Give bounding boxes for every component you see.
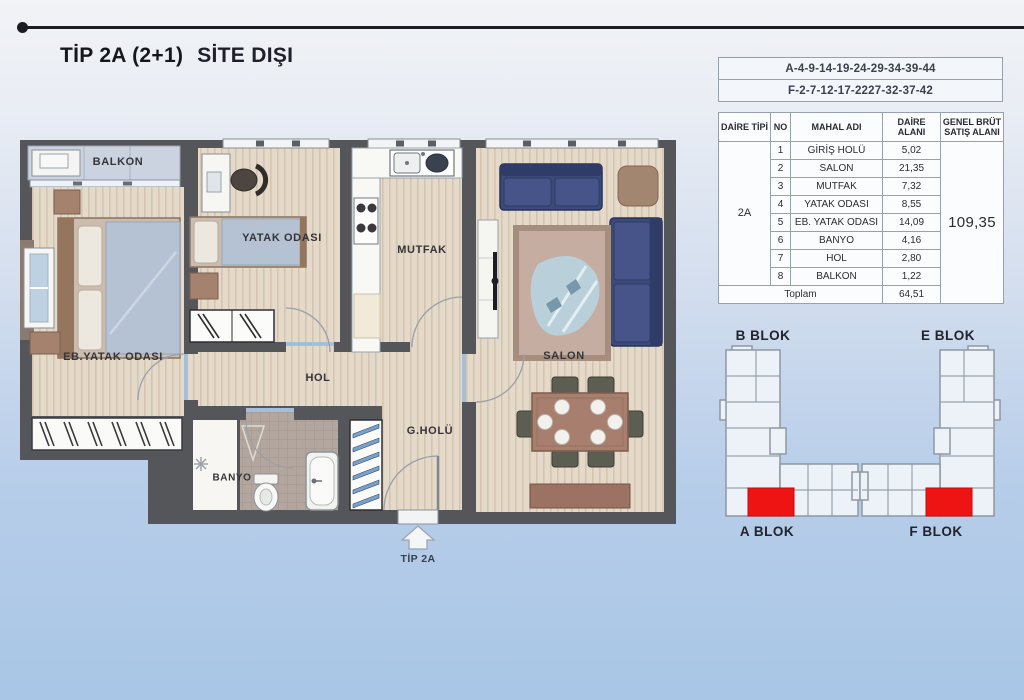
entrance-opening xyxy=(398,510,438,524)
area-table: DAİRE TİPİ NO MAHAL ADI DAİRE ALANI GENE… xyxy=(718,112,1004,304)
unit-codes-line-1: A-4-9-14-19-24-29-34-39-44 xyxy=(718,57,1003,80)
row-name: BANYO xyxy=(791,232,883,250)
col-daire-tipi: DAİRE TİPİ xyxy=(719,113,771,142)
entrance-type-label: TİP 2A xyxy=(401,553,436,565)
block-label-a: A BLOK xyxy=(712,524,822,539)
row-no: 8 xyxy=(771,268,791,286)
bathtub xyxy=(306,452,338,510)
bedroom2-wardrobe xyxy=(190,310,274,342)
col-mahal-adi: MAHAL ADI xyxy=(791,113,883,142)
row-area: 2,80 xyxy=(883,250,941,268)
unit-codes: A-4-9-14-19-24-29-34-39-44 F-2-7-12-17-2… xyxy=(718,57,1003,102)
col-daire-alani: DAİRE ALANI xyxy=(883,113,941,142)
eb-wardrobe xyxy=(32,418,182,450)
block-label-b: B BLOK xyxy=(708,328,818,343)
sofa-two-seat xyxy=(500,164,602,210)
sideboard xyxy=(530,484,630,508)
page-title-type: TİP 2A (2+1) xyxy=(60,44,183,67)
col-genel-brut: GENEL BRÜT SATIŞ ALANI xyxy=(941,113,1004,142)
row-no: 5 xyxy=(771,214,791,232)
page-title: TİP 2A (2+1)SİTE DIŞI xyxy=(60,44,293,68)
page-title-suffix: SİTE DIŞI xyxy=(197,44,293,67)
toplam-label: Toplam xyxy=(719,286,883,304)
header-line xyxy=(22,26,1024,29)
row-area: 7,32 xyxy=(883,178,941,196)
star-symbol xyxy=(194,457,208,471)
sofa-three-seat xyxy=(610,218,662,346)
row-name: GİRİŞ HOLÜ xyxy=(791,142,883,160)
block-diagram-ef xyxy=(858,344,1008,524)
floor-plan: BALKON YATAK ODASI MUTFAK SALON EB.YATAK… xyxy=(18,134,698,579)
daire-tipi-value: 2A xyxy=(719,142,771,286)
bay-window xyxy=(20,240,54,340)
highlighted-unit xyxy=(748,488,794,516)
row-name: HOL xyxy=(791,250,883,268)
row-area: 8,55 xyxy=(883,196,941,214)
room-label-eb-yatak-odasi: EB.YATAK ODASI xyxy=(63,351,163,363)
room-label-hol: HOL xyxy=(305,372,330,384)
room-label-yatak-odasi: YATAK ODASI xyxy=(242,232,322,244)
toplam-value: 64,51 xyxy=(883,286,941,304)
row-no: 7 xyxy=(771,250,791,268)
stove xyxy=(354,198,378,244)
row-no: 6 xyxy=(771,232,791,250)
room-label-g-holu: G.HOLÜ xyxy=(407,425,453,437)
row-area: 1,22 xyxy=(883,268,941,286)
row-no: 1 xyxy=(771,142,791,160)
rug xyxy=(516,228,608,358)
dresser xyxy=(30,332,60,354)
block-diagram-ba xyxy=(712,344,862,524)
row-name: EB. YATAK ODASI xyxy=(791,214,883,232)
row-area: 14,09 xyxy=(883,214,941,232)
row-area: 5,02 xyxy=(883,142,941,160)
room-label-banyo: BANYO xyxy=(212,473,251,484)
row-name: SALON xyxy=(791,160,883,178)
row-area: 4,16 xyxy=(883,232,941,250)
unit-codes-line-2: F-2-7-12-17-2227-32-37-42 xyxy=(718,79,1003,102)
highlighted-unit xyxy=(926,488,972,516)
row-name: BALKON xyxy=(791,268,883,286)
row-name: MUTFAK xyxy=(791,178,883,196)
row-no: 4 xyxy=(771,196,791,214)
kitchen-sink xyxy=(390,150,454,176)
table-row: 2A 1 GİRİŞ HOLÜ 5,02 109,35 xyxy=(719,142,1004,160)
toilet xyxy=(254,474,278,511)
tv-console xyxy=(478,220,499,338)
block-label-e: E BLOK xyxy=(893,328,1003,343)
row-name: YATAK ODASI xyxy=(791,196,883,214)
shoe-cabinet xyxy=(350,420,382,510)
desk xyxy=(202,154,230,212)
entrance-arrow-icon xyxy=(402,526,434,549)
row-area: 21,35 xyxy=(883,160,941,178)
area-table-header: DAİRE TİPİ NO MAHAL ADI DAİRE ALANI GENE… xyxy=(719,113,1004,142)
row-no: 3 xyxy=(771,178,791,196)
room-label-mutfak: MUTFAK xyxy=(397,244,446,256)
nightstand xyxy=(190,273,218,299)
brochure-page: TİP 2A (2+1)SİTE DIŞI A-4-9-14-19-24-29-… xyxy=(0,0,1024,700)
genel-brut-value: 109,35 xyxy=(941,142,1004,304)
double-bed xyxy=(58,218,180,358)
row-no: 2 xyxy=(771,160,791,178)
kitchen-cabinet xyxy=(354,294,380,338)
pouf xyxy=(618,166,658,206)
block-label-f: F BLOK xyxy=(881,524,991,539)
room-label-salon: SALON xyxy=(543,350,585,362)
col-no: NO xyxy=(771,113,791,142)
nightstand xyxy=(54,190,80,214)
room-label-balkon: BALKON xyxy=(93,156,144,168)
